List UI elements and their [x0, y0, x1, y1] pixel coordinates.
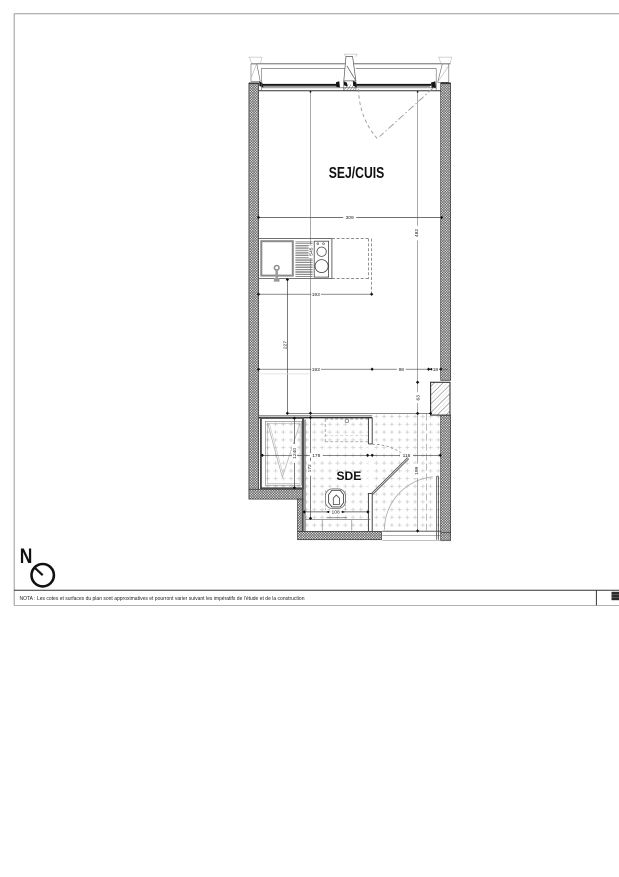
svg-text:178: 178 — [312, 453, 320, 459]
svg-text:98: 98 — [399, 367, 405, 373]
svg-text:63: 63 — [416, 395, 422, 401]
svg-text:193: 193 — [312, 292, 320, 298]
svg-text:482: 482 — [414, 229, 420, 237]
svg-text:1240: 1240 — [292, 448, 298, 459]
svg-text:SEJ/CUIS: SEJ/CUIS — [329, 165, 385, 182]
svg-text:SDE: SDE — [337, 469, 362, 483]
svg-text:N: N — [20, 545, 33, 568]
svg-text:172: 172 — [307, 464, 313, 472]
svg-text:18: 18 — [433, 367, 439, 373]
svg-text:545: 545 — [309, 247, 315, 255]
svg-text:116: 116 — [403, 453, 411, 459]
svg-text:108: 108 — [332, 509, 340, 515]
svg-text:227: 227 — [283, 341, 289, 349]
svg-text:309: 309 — [346, 215, 354, 221]
svg-text:NOTA : Les cotes et surfaces d: NOTA : Les cotes et surfaces du plan son… — [20, 596, 305, 602]
svg-text:193: 193 — [312, 367, 320, 373]
svg-text:199: 199 — [414, 466, 420, 474]
